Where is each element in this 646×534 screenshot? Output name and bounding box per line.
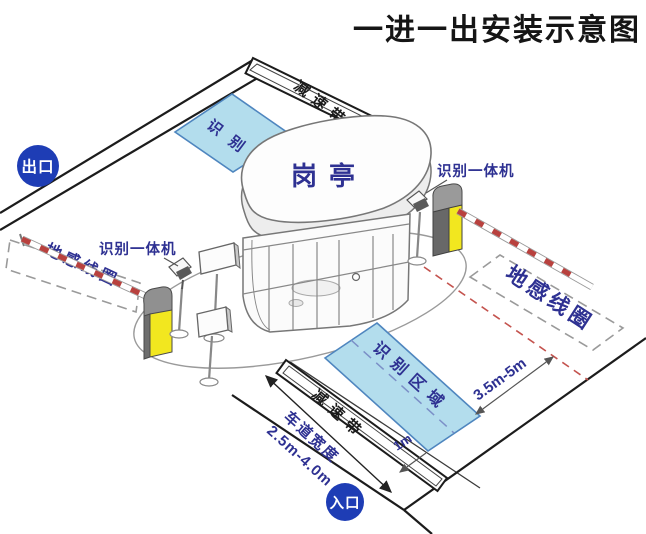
- reader-left-label: 识别一体机: [99, 240, 177, 258]
- barrier-machine-left: [144, 287, 172, 359]
- booth-desk: [292, 280, 340, 296]
- booth-stool: [289, 300, 303, 307]
- entry-badge-label: 入口: [330, 495, 361, 512]
- booth-door-knob: [353, 274, 360, 281]
- installation-diagram: 减速带 识别区域 地感线圈 减速带 车道宽度 2.: [0, 0, 646, 534]
- diagram-title: 一进一出安装示意图: [353, 13, 641, 47]
- guard-booth: 岗亭: [242, 116, 431, 332]
- entry-badge: 入口: [326, 483, 364, 521]
- barrier-machine-right: [433, 184, 462, 256]
- exit-badge: 出口: [17, 145, 59, 187]
- exit-badge-label: 出口: [21, 157, 54, 176]
- camera-right-base: [408, 257, 426, 265]
- booth-label: 岗亭: [291, 161, 367, 191]
- reader-right-label: 识别一体机: [437, 162, 515, 180]
- camera-left-base: [170, 330, 188, 338]
